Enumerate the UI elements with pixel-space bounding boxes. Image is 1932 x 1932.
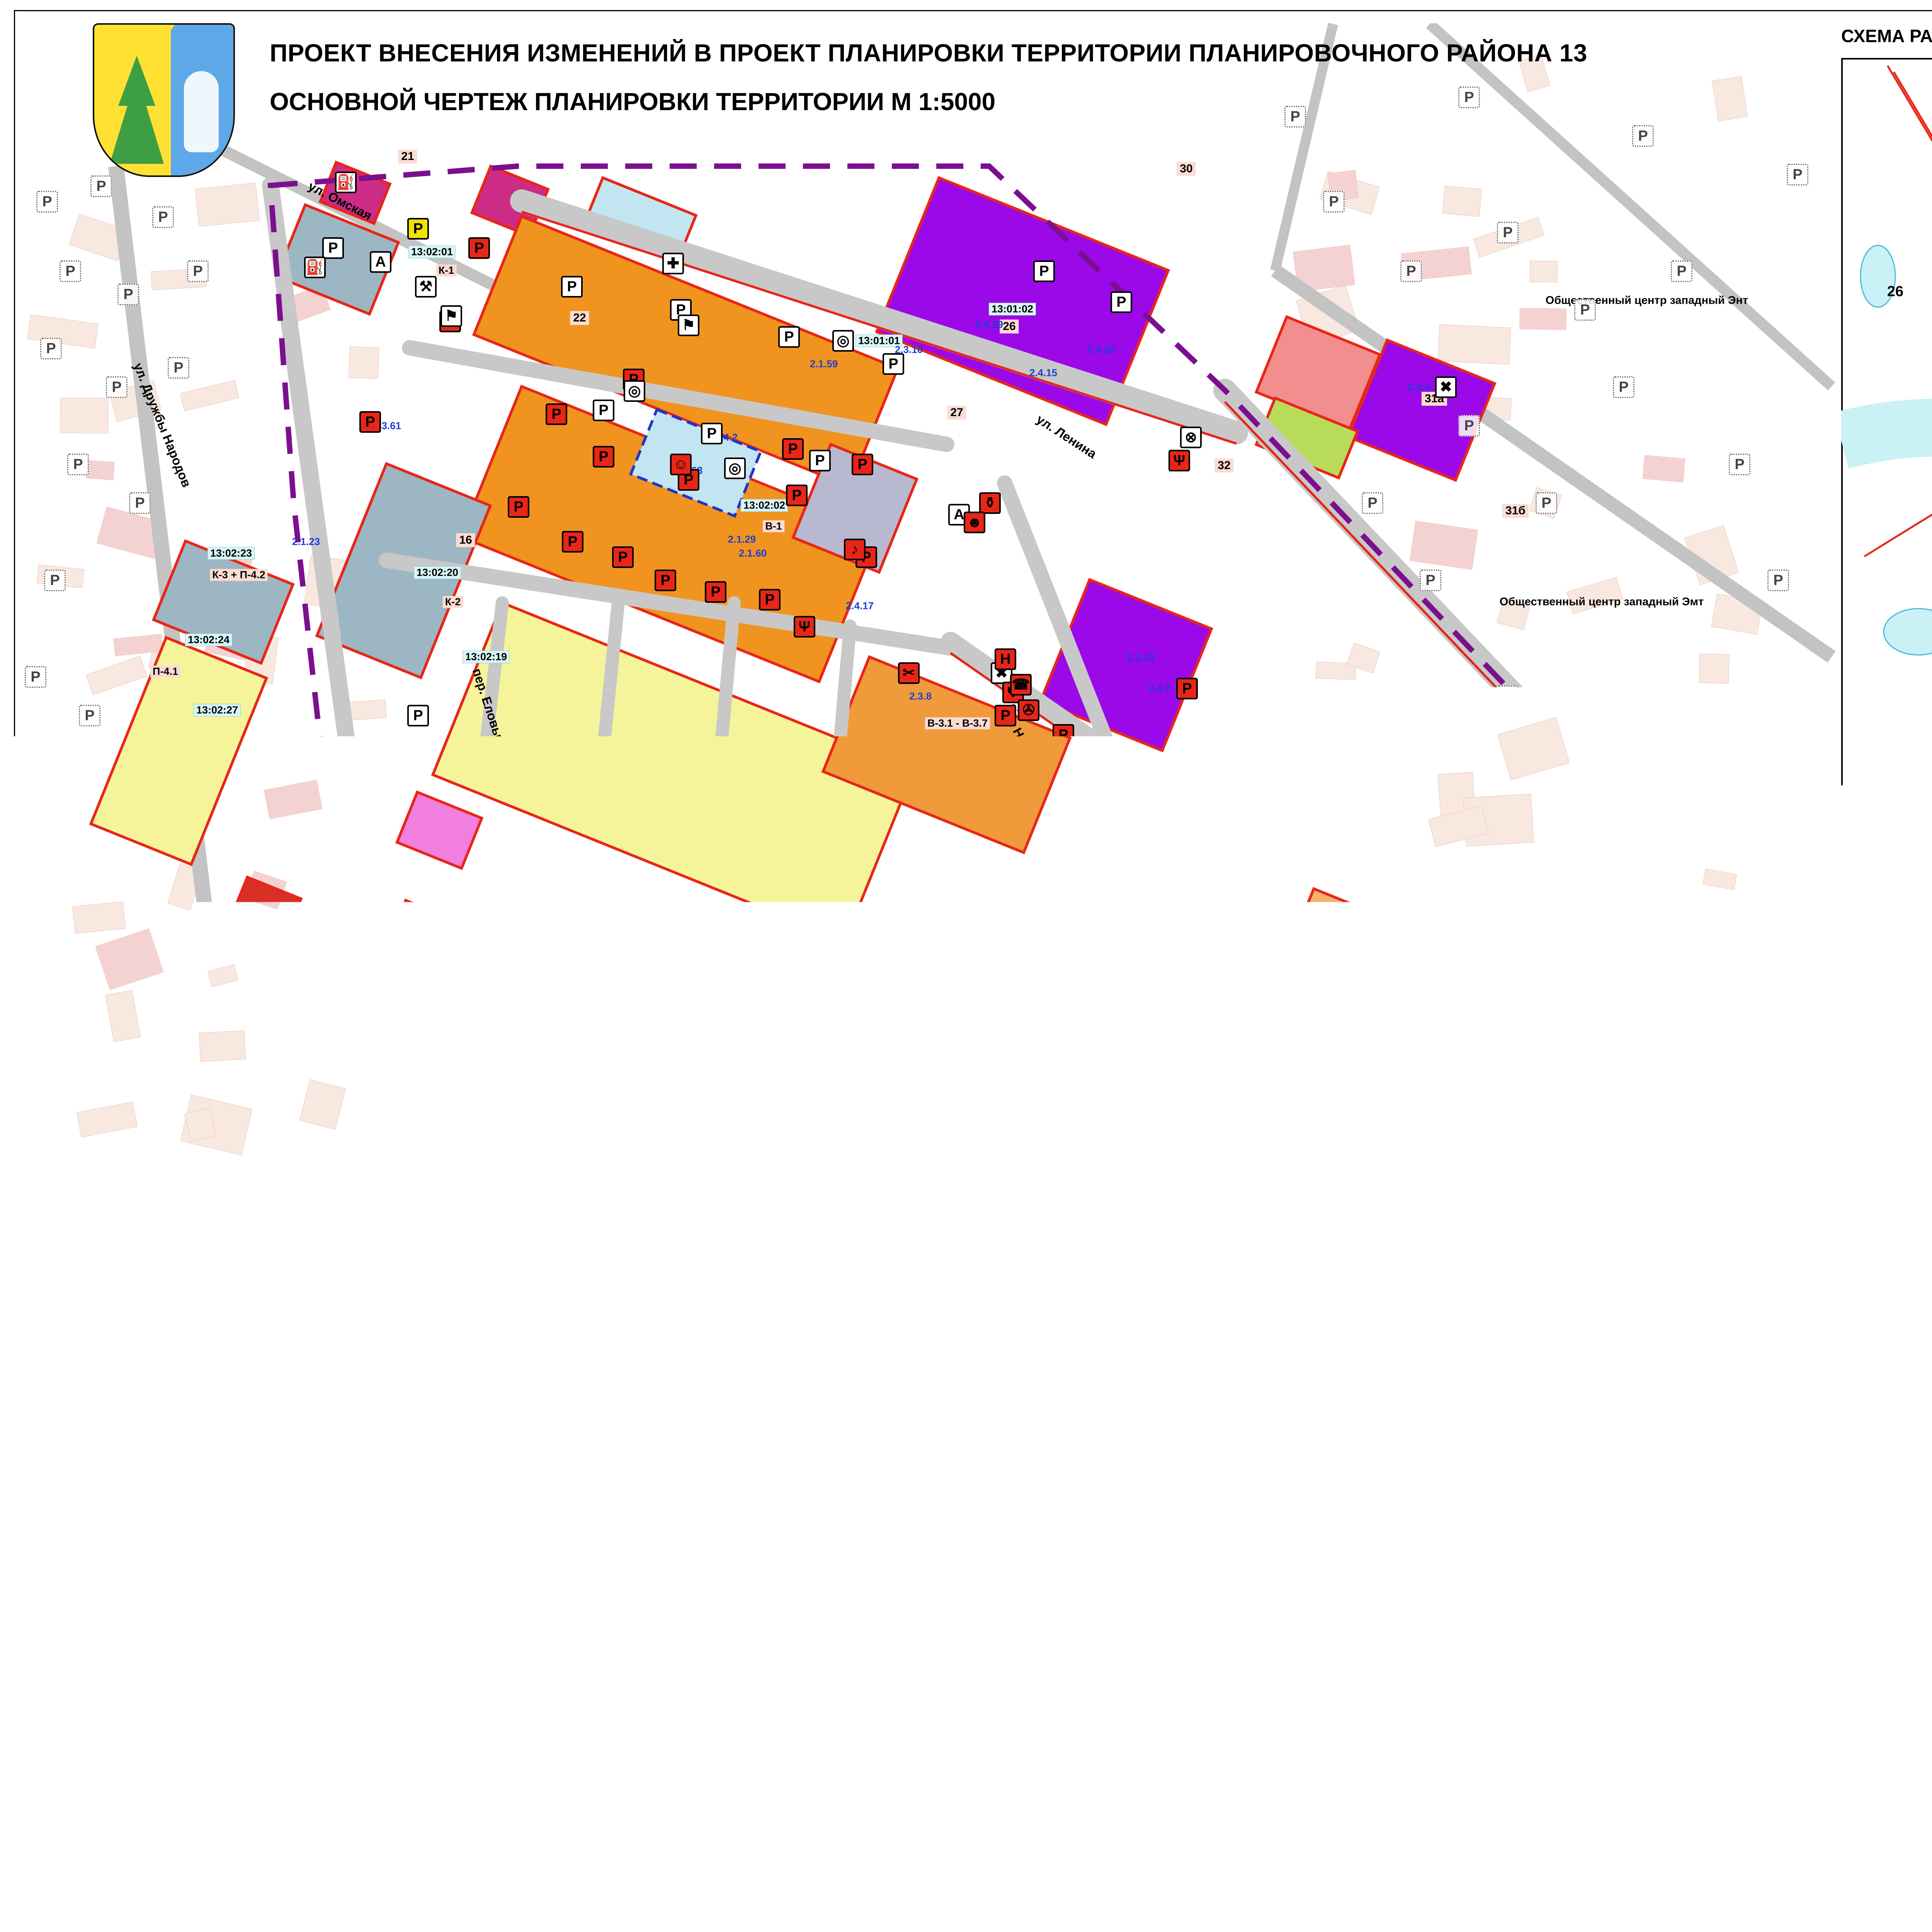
legend-swatch <box>97 1904 155 1928</box>
legend-swatch: ✚ <box>1928 993 1932 1026</box>
medical-outpatient: ✚Лечебно-профилактическая медицинская ор… <box>1928 990 1932 1030</box>
legend-swatch <box>97 1930 155 1932</box>
zone-trade-catering: Торговли и общественного питания <box>97 1877 437 1901</box>
legend-swatch: ⚱ <box>1928 1265 1932 1298</box>
legend-label: Социального и коммунально-бытового обслу… <box>169 1848 437 1874</box>
service-station-existing: ⚒Станция технического обслуживания <box>448 1776 881 1809</box>
legend-swatch <box>97 1714 155 1738</box>
project-boundary: Граница проектируемой территории <box>97 1295 437 1327</box>
legend-swatch: ☺ <box>1928 1463 1932 1495</box>
zone-administrative: Административно-делового назначения <box>97 1794 437 1818</box>
legend-label: Линия отступа от красных линий в целях о… <box>169 1554 437 1594</box>
fuel-station-existing: ⛽Станция автозаправочная <box>448 1739 881 1772</box>
legend-heading: СУЩЕСТВУЮЩИЙ, РЕКОНСТРУИРУЕМЫЙ, СТРОЯЩИЙ… <box>1928 1446 1932 1458</box>
legend-swatch: ⛽ <box>448 1830 506 1863</box>
legend-swatch: ☺ <box>1928 1554 1932 1587</box>
legend-swatch <box>97 1794 155 1818</box>
legend-heading: МЕСТНОЕ ЗНАЧЕНИЕ ГОРОДСКОГО ОКРУГА <box>1928 1159 1932 1175</box>
inset-map <box>1841 58 1932 854</box>
zone-social-communal: Социального и коммунально-бытового обслу… <box>97 1848 437 1874</box>
sport-facility-planned: ◎Спортивное сооружение <box>1928 1121 1932 1153</box>
legend-swatch: ☻ <box>1928 1339 1932 1372</box>
legend-heading: ОБЪЕКТЫ ОБРАЗОВАНИЯ И НАУКИ <box>1928 1430 1932 1442</box>
legend-swatch: ♪ <box>1928 1628 1932 1661</box>
zone-individual: Индивидуальной жилой застройки <box>97 1714 437 1738</box>
legend-swatch <box>97 1295 155 1327</box>
zone-multistorey: Многоэтажной жилой застройки <box>97 1634 437 1658</box>
legend-label: Границы элементов планировочной структур… <box>169 1409 437 1435</box>
legend-label: Общественно-жилого назначения <box>169 1773 437 1786</box>
legend-label: Торговли и общественного питания <box>169 1882 437 1895</box>
legend-heading: РЕГИОНАЛЬНОЕ ЗНАЧЕНИЕ <box>1928 937 1932 953</box>
legend-swatch <box>97 1406 155 1439</box>
legend-label: Станция технического обслуживания <box>521 1877 881 1890</box>
legend-heading: ОБЪЕКТЫ ФИЗИЧЕСКОЙ КУЛЬТУРЫ И МАССОВОГО … <box>1928 1088 1932 1100</box>
quarter-boundary: Границы элементов планировочной структур… <box>97 1406 437 1439</box>
legend-label: Станция автозаправочная <box>521 1840 881 1853</box>
culture-object-existing: ⚱Объект культурно-просветительного назна… <box>1928 1211 1932 1244</box>
legend-swatch <box>97 1558 155 1590</box>
legend-label: Здравоохранения <box>169 1827 437 1840</box>
legend-heading: ОСТАНОВОЧНЫЕ ПУНКТЫ ОБЩЕСТВЕННОГО ПАССАЖ… <box>448 1905 881 1917</box>
legend-swatch: 1 <box>97 1369 155 1401</box>
legend-swatch <box>97 1849 155 1873</box>
legend-label: Административно-делового назначения <box>169 1800 437 1813</box>
legend-swatch <box>97 1688 155 1712</box>
legend-label: Красные линии <box>169 1527 437 1540</box>
legend-heading: ЗОНЫ ПЛАНИРУЕМОГО РАЗМЕЩЕНИЯ ОБЪЕКТОВ КА… <box>97 1599 437 1631</box>
zone-midrise: Среднеэтажной жилой застройки <box>97 1661 437 1685</box>
quarter-number: 13:01:01Номера элементов планировочной с… <box>97 1443 437 1476</box>
legend-label: Станция автозаправочная <box>521 1749 881 1762</box>
legend-swatch: ⚱ <box>1928 1393 1932 1425</box>
legend-swatch: ✎ <box>1928 1591 1932 1624</box>
legend-swatch <box>97 1517 155 1550</box>
inset-title: СХЕМА РАСПОЛОЖЕНИЯ ЭЛЕМЕНТА ПЛАНИРОВОЧНО… <box>1841 26 1932 46</box>
legend-heading: СУЩЕСТВУЮЩИЙ, РЕКОНСТРУИРУЕМЫЙ, СТРОЯЩИЙ… <box>1928 1194 1932 1206</box>
legend-heading: СУЩЕСТВУЮЩИЙ, РЕКОНСТРУИРУЕМЫЙ, СТРОЯЩИЙ… <box>448 1920 881 1932</box>
fuel-station-liquidated: ⛽Станция автозаправочная <box>448 1830 881 1863</box>
legend-label: Номера элементов планировочной структуры… <box>169 1446 437 1473</box>
legend-swatch <box>97 1768 155 1792</box>
zone-public-residential: Общественно-жилого назначения <box>97 1768 437 1792</box>
legend-swatch: ◎ <box>1928 1121 1932 1153</box>
legend-swatch: ✎ <box>1928 1500 1932 1532</box>
legend-swatch: ⚒ <box>448 1776 506 1809</box>
legend-label: Наименования элементов планировочной стр… <box>169 1483 437 1510</box>
legend-heading: ПЛАНИРУЕМЫЙ К РАЗМЕЩЕНИЮ <box>1928 1537 1932 1549</box>
legend-swatch: ⛽ <box>448 1739 506 1772</box>
page-title: ПРОЕКТ ВНЕСЕНИЯ ИЗМЕНЕНИЙ В ПРОЕКТ ПЛАНИ… <box>270 39 1587 67</box>
legend-label: Учебно-образовательного назначения <box>169 1909 437 1922</box>
city-coat-of-arms-icon <box>93 23 235 177</box>
legend-heading: МЕСТНОЕ ЗНАЧЕНИЕ ГОРОДСКОГО ОКРУГА <box>448 1649 881 1665</box>
culture-object-liquidated: ⚱Объект культурно-просветительного назна… <box>1928 1393 1932 1425</box>
spectacle-org: ☻Зрелищная организация <box>1928 1339 1932 1372</box>
wrench-icon: ⚒ <box>466 1781 489 1804</box>
legend-swatch: ⚒ <box>448 1867 506 1900</box>
legend-label: Многоэтажной жилой застройки <box>169 1640 437 1653</box>
legend-swatch <box>97 1634 155 1658</box>
quarter-name: 33Наименования элементов планировочной с… <box>97 1480 437 1513</box>
service-station-liquidated: ⚒Станция технического обслуживания <box>448 1867 881 1900</box>
street-road-network: Улично-дорожная сеть <box>448 1670 881 1702</box>
page-subtitle: ОСНОВНОЙ ЧЕРТЕЖ ПЛАНИРОВКИ ТЕРРИТОРИИ М … <box>270 87 1587 116</box>
legend-heading: ГРАНИЦЫ И ТЕРРИТОРИИ <box>97 1274 437 1290</box>
legend-label: Среднеэтажной жилой застройки <box>169 1667 437 1680</box>
legend-swatch: ⚱ <box>1928 1211 1932 1244</box>
legend-heading: СУЩЕСТВУЮЩИЙ, РЕКОНСТРУИРУЕМЫЙ, СТРОЯЩИЙ… <box>448 1723 881 1735</box>
legend-swatch <box>97 1741 155 1765</box>
legend-label: Станция технического обслуживания <box>521 1786 881 1799</box>
legend-heading: ПЛАНИРУЕМЫЙ К ЛИКВИДАЦИИ <box>1928 1376 1932 1388</box>
club-object-planned: ✇Объект культурно-досугового (клубного) … <box>1928 1302 1932 1335</box>
zone-public-business: Общественно-делового назначения <box>97 1741 437 1765</box>
preschool-planned: ☺Дошкольная образовательная организация <box>1928 1554 1932 1587</box>
legend-swatch: 33 <box>97 1480 155 1513</box>
culture-object-planned: ⚱Объект культурно-просветительного назна… <box>1928 1265 1932 1298</box>
preschool-existing: ☺Дошкольная образовательная организация <box>1928 1463 1932 1495</box>
zone-culture-leisure: Культурно-досугового назначения <box>97 1930 437 1932</box>
legend-label: Малоэтажной жилой застройки <box>169 1693 437 1706</box>
legend-heading: ОБЪЕКТЫ СОЦИАЛЬНОЙ ИНФРАСТРУКТУРЫ, ОТДЫХ… <box>1928 875 1932 932</box>
district-boundary: Границы элементов планировочной структур… <box>97 1332 437 1364</box>
legend-label: Общественно-делового назначения <box>169 1747 437 1760</box>
legend-label: Граница проектируемой территории <box>169 1304 437 1318</box>
legend-heading: ОБЪЕКТЫ ОБСЛУЖИВАНИЯ И ХРАНЕНИЯ АВТОМОБИ… <box>448 1707 881 1719</box>
plan-sheet: ПРОЕКТ ВНЕСЕНИЯ ИЗМЕНЕНИЙ В ПРОЕКТ ПЛАНИ… <box>0 0 1932 1932</box>
legend-heading: ОБЪЕКТЫ ЗДРАВООХРАНЕНИЯ <box>1928 957 1932 969</box>
red-lines: Красные линии <box>97 1517 437 1550</box>
school-existing: ✎Общеобразовательная организация <box>1928 1500 1932 1532</box>
legend-label: Улично-дорожная сеть <box>521 1679 881 1692</box>
legend-swatch <box>97 1661 155 1685</box>
legend-swatch <box>97 1821 155 1845</box>
additional-education: ♪Организация дополнительного образования <box>1928 1628 1932 1661</box>
legend-swatch <box>97 1877 155 1901</box>
fuel-icon: ⛽ <box>466 1835 489 1858</box>
zone-lowrise: Малоэтажной жилой застройки <box>97 1688 437 1712</box>
wrench-icon: ⚒ <box>466 1872 489 1895</box>
zone-education: Учебно-образовательного назначения <box>97 1904 437 1928</box>
legend-heading: ПЛАНИРУЕМЫЙ К ЛИКВИДАЦИИ <box>448 1813 881 1825</box>
legend-swatch: ✇ <box>1928 1302 1932 1335</box>
legend-transport: ОБЪЕКТЫ ТРАНСПОРТНОЙ ИНФРАСТРУКТУРЫМЕСТН… <box>448 1619 881 1932</box>
school-planned: ✎Общеобразовательная организация <box>1928 1591 1932 1624</box>
legend-social: ОБЪЕКТЫ СОЦИАЛЬНОЙ ИНФРАСТРУКТУРЫ, ОТДЫХ… <box>1928 869 1932 1665</box>
header: ПРОЕКТ ВНЕСЕНИЯ ИЗМЕНЕНИЙ В ПРОЕКТ ПЛАНИ… <box>93 23 1587 177</box>
district-number: 1Номера элементов планировочной структур… <box>97 1369 437 1401</box>
setback-line: Линия отступа от красных линий в целях о… <box>97 1554 437 1594</box>
ambulance-org: ✚Медицинская организация, оказывающая ск… <box>1928 1051 1932 1083</box>
legend-heading: ПЛАНИРУЕМЫЙ К РАЗМЕЩЕНИЮ <box>1928 1034 1932 1046</box>
legend-label: Номера элементов планировочной структуры… <box>169 1372 437 1398</box>
legend-label: Индивидуальной жилой застройки <box>169 1720 437 1733</box>
legend-label: Границы элементов планировочной структур… <box>169 1335 437 1361</box>
stad-icon: ◎ <box>1906 948 1928 970</box>
fuel-icon: ⛽ <box>466 1744 489 1767</box>
legend-heading: ПЛАНИРУЕМЫЙ К РАЗМЕЩЕНИЮ <box>1928 1248 1932 1260</box>
zone-healthcare: Здравоохранения <box>97 1821 437 1845</box>
legend-heading: ОБЪЕКТЫ ТРАНСПОРТНОЙ ИНФРАСТРУКТУРЫ <box>448 1624 881 1643</box>
legend-heading: ОБЪЕКТЫ КУЛЬТУРЫ И ИСКУССТВА <box>1928 1179 1932 1190</box>
legend-swatch <box>448 1670 506 1702</box>
legend-heading: ПЛАНИРУЕМЫЙ К РАЗМЕЩЕНИЮ <box>1928 1104 1932 1116</box>
legend-borders-zones: УСЛОВНЫЕ ОБОЗНАЧЕНИЯГРАНИЦЫ И ТЕРРИТОРИИ… <box>97 1244 437 1932</box>
legend-swatch <box>97 1332 155 1364</box>
legend-swatch: 13:01:01 <box>97 1443 155 1476</box>
legend-heading: УСЛОВНЫЕ ОБОЗНАЧЕНИЯ <box>97 1250 437 1269</box>
legend-swatch: ✚ <box>1928 1051 1932 1083</box>
legend-heading: СУЩЕСТВУЮЩИЙ, РЕКОНСТРУИРУЕМЫЙ, СТРОЯЩИЙ… <box>1928 973 1932 985</box>
